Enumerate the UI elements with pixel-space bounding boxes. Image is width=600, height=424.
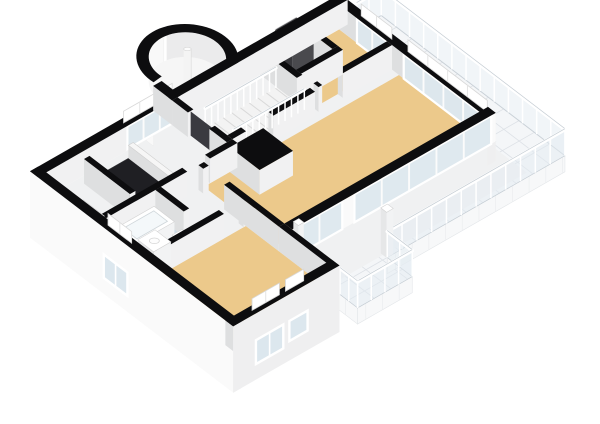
floor-plan-3d-canvas[interactable] [0,0,600,424]
floor-plan-svg[interactable] [0,0,600,424]
wall-corridor-east-a[interactable] [198,162,208,193]
